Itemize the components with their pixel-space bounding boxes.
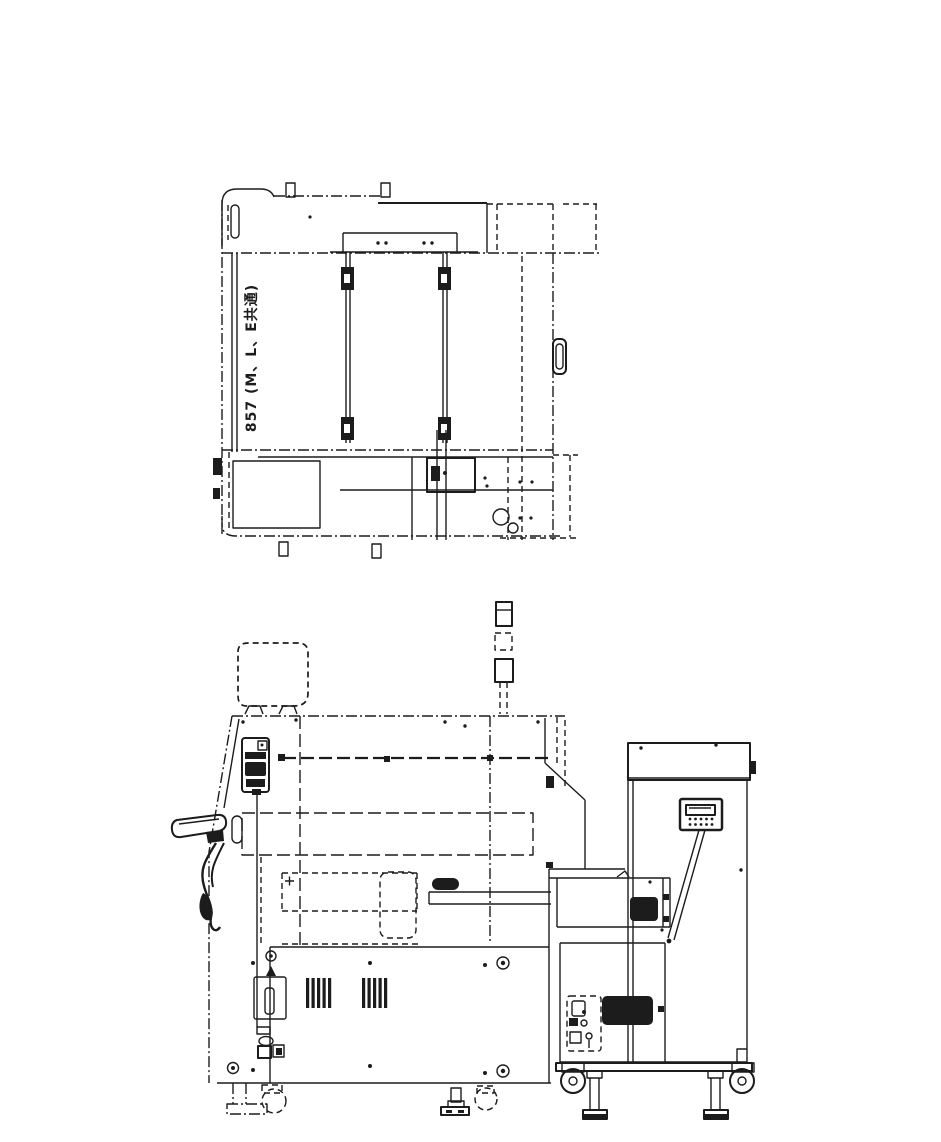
technical-drawing: 857 (M、L、E共通) (0, 0, 941, 1142)
mounting-post (279, 542, 288, 556)
pendant-display (686, 805, 715, 815)
tower-lamp-bottom (495, 659, 513, 682)
tower-lamp-top (496, 602, 512, 626)
plan-dimension-band: 857 (M、L、E共通) (232, 253, 260, 452)
plus-mark (285, 877, 294, 886)
mounting-post (372, 544, 381, 558)
plan-side-handle (553, 339, 566, 374)
cart-base (556, 1063, 754, 1119)
leveling-foot-middle (441, 1088, 469, 1115)
cart-caster-left (561, 1063, 585, 1093)
handle-slot (232, 816, 242, 843)
rail-knob (432, 878, 459, 890)
plan-bottom-assembly (213, 430, 578, 540)
hole-large (493, 509, 509, 525)
leveling-foot-left (227, 1083, 267, 1114)
plan-conveyor-rails (330, 233, 478, 443)
plan-dimension-label: 857 (M、L、E共通) (243, 284, 260, 432)
keypad-pendant (680, 799, 722, 830)
arrow-up-icon (266, 966, 276, 976)
corner-slot (231, 205, 239, 238)
cart-top-cap (628, 743, 756, 780)
cart-vent-grille (602, 996, 653, 1025)
feeder-cart (549, 743, 756, 1119)
bottom-left-box (233, 461, 320, 528)
hole-small (508, 523, 518, 533)
plan-view: 857 (M、L、E共通) (213, 183, 600, 558)
vent-grille-left (306, 978, 331, 1008)
tower-lamp-middle (495, 633, 512, 650)
vent-grille-right (362, 978, 387, 1008)
signal-tower (495, 602, 513, 714)
base-panel (228, 951, 510, 1077)
shelf-vent-grille (630, 897, 658, 921)
caster-middle (475, 1086, 497, 1110)
tower-pole (500, 682, 507, 714)
cart-foot-right (704, 1071, 728, 1119)
cart-caster-right (730, 1063, 754, 1093)
mounting-post (286, 183, 295, 197)
cart-lower-unit (560, 943, 665, 1062)
feeder-motor (242, 738, 269, 795)
cart-foot-left (583, 1071, 607, 1119)
caster-left (262, 1085, 286, 1113)
cart-shelf-unit (549, 869, 670, 927)
machine-feet-casters (227, 1083, 497, 1115)
drawing-page: 857 (M、L、E共通) (0, 0, 941, 1142)
side-view (172, 602, 756, 1119)
plan-outer-frame (222, 183, 600, 558)
crt-monitor (238, 643, 308, 714)
mounting-post (381, 183, 390, 197)
operator-handle (172, 815, 242, 930)
cart-control-panel (567, 996, 601, 1051)
